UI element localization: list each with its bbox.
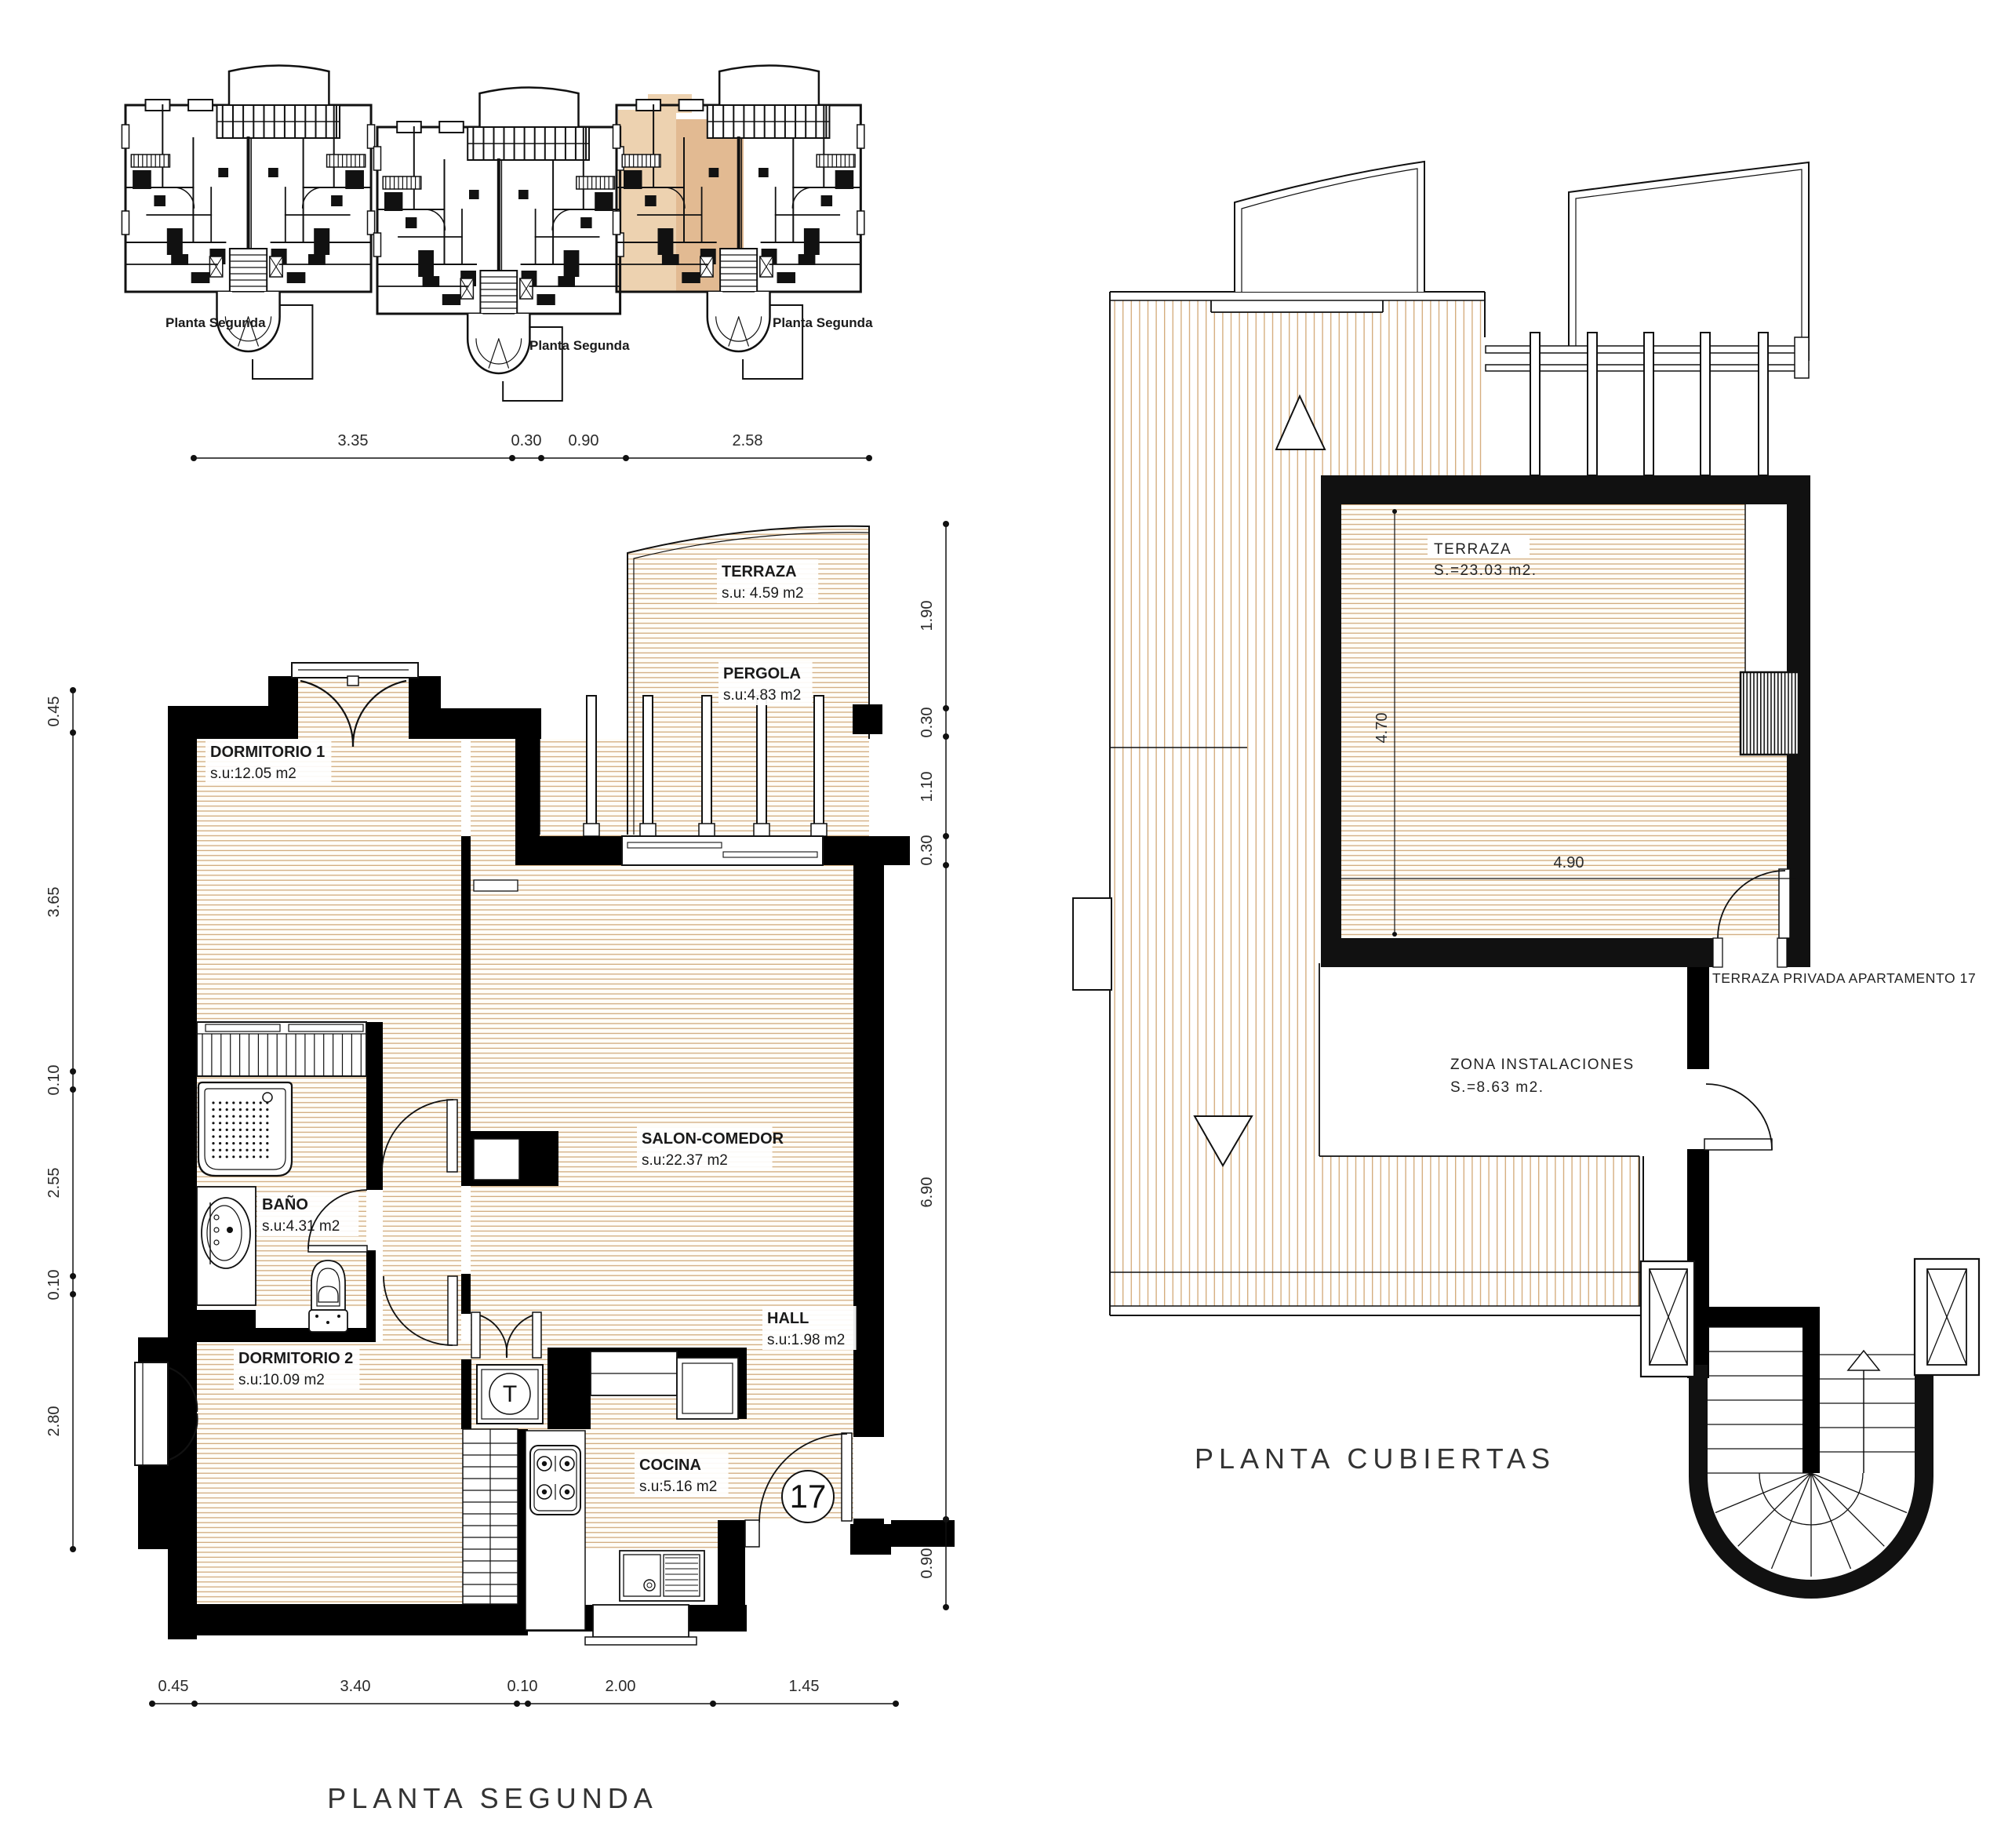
svg-text:3.35: 3.35: [338, 432, 369, 449]
svg-text:0.30: 0.30: [919, 835, 936, 866]
svg-text:2.80: 2.80: [45, 1406, 63, 1437]
svg-text:0.10: 0.10: [45, 1065, 63, 1096]
svg-text:2.58: 2.58: [733, 432, 763, 449]
svg-text:Planta Segunda: Planta Segunda: [166, 315, 266, 330]
svg-text:DORMITORIO 2: DORMITORIO 2: [238, 1350, 353, 1367]
svg-text:1.45: 1.45: [789, 1678, 820, 1695]
svg-text:PLANTA SEGUNDA: PLANTA SEGUNDA: [327, 1782, 657, 1814]
svg-text:TERRAZA PRIVADA APARTAMENTO: TERRAZA PRIVADA APARTAMENTO 17: [1712, 970, 1976, 986]
svg-text:DORMITORIO 1: DORMITORIO 1: [210, 744, 325, 761]
svg-text:BAÑO: BAÑO: [262, 1195, 308, 1213]
svg-text:6.90: 6.90: [919, 1177, 936, 1208]
svg-text:s.u:5.16 m2: s.u:5.16 m2: [639, 1479, 717, 1495]
svg-text:COCINA: COCINA: [639, 1457, 701, 1474]
svg-text:1.10: 1.10: [919, 772, 936, 802]
svg-text:4.70: 4.70: [1373, 713, 1391, 744]
svg-text:S.=23.03 m2.: S.=23.03 m2.: [1434, 562, 1537, 579]
svg-text:0.90: 0.90: [569, 432, 599, 449]
svg-text:17: 17: [790, 1478, 827, 1515]
svg-text:s.u:10.09 m2: s.u:10.09 m2: [238, 1372, 325, 1388]
svg-text:Planta Segunda: Planta Segunda: [773, 315, 873, 330]
svg-text:s.u:12.05 m2: s.u:12.05 m2: [210, 766, 296, 782]
svg-text:0.45: 0.45: [158, 1678, 189, 1695]
svg-text:0.30: 0.30: [919, 708, 936, 738]
svg-text:HALL: HALL: [767, 1310, 809, 1327]
svg-text:s.u:22.37 m2: s.u:22.37 m2: [642, 1152, 728, 1169]
svg-text:0.90: 0.90: [919, 1548, 936, 1579]
svg-text:2.00: 2.00: [606, 1678, 636, 1695]
svg-text:4.90: 4.90: [1554, 854, 1584, 871]
svg-text:s.u: 4.59 m2: s.u: 4.59 m2: [722, 585, 804, 602]
svg-text:3.65: 3.65: [45, 887, 63, 918]
svg-text:PERGOLA: PERGOLA: [723, 665, 801, 682]
svg-text:0.10: 0.10: [507, 1678, 538, 1695]
svg-text:0.10: 0.10: [45, 1270, 63, 1301]
svg-text:TERRAZA: TERRAZA: [1434, 541, 1511, 558]
svg-text:s.u:4.83 m2: s.u:4.83 m2: [723, 687, 801, 704]
svg-text:2.55: 2.55: [45, 1168, 63, 1199]
svg-text:T: T: [503, 1381, 517, 1407]
svg-text:ZONA INSTALACIONES: ZONA INSTALACIONES: [1450, 1057, 1635, 1073]
svg-text:SALON-COMEDOR: SALON-COMEDOR: [642, 1130, 784, 1148]
svg-text:Planta Segunda: Planta Segunda: [529, 338, 630, 353]
svg-text:0.45: 0.45: [45, 697, 63, 727]
svg-text:s.u:1.98 m2: s.u:1.98 m2: [767, 1332, 845, 1348]
svg-text:s.u:4.31 m2: s.u:4.31 m2: [262, 1218, 340, 1235]
svg-text:PLANTA CUBIERTAS: PLANTA CUBIERTAS: [1195, 1442, 1555, 1475]
svg-text:TERRAZA: TERRAZA: [722, 563, 797, 580]
svg-text:S.=8.63 m2.: S.=8.63 m2.: [1450, 1079, 1544, 1096]
svg-text:0.30: 0.30: [511, 432, 542, 449]
svg-text:3.40: 3.40: [340, 1678, 371, 1695]
svg-text:1.90: 1.90: [919, 601, 936, 631]
